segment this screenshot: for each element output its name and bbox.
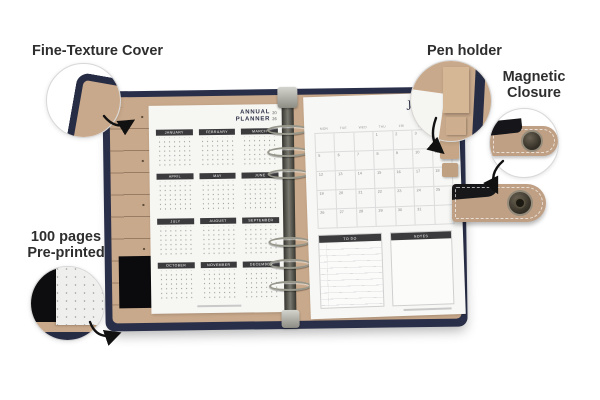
label-pages-line1: 100 pages <box>14 230 118 246</box>
magnifier-cover-texture <box>46 63 121 138</box>
notes-box: NOTES <box>390 230 455 306</box>
left-page-footer-text-line <box>197 305 241 308</box>
calendar-cell: 30 <box>396 207 416 227</box>
mini-month: MAY <box>199 173 236 213</box>
magnifier-magnetic-closure <box>489 108 559 178</box>
notes-header: NOTES <box>391 231 451 240</box>
calendar-cell: 31 <box>415 206 435 226</box>
label-pen-holder: Pen holder <box>427 44 502 60</box>
product-photo-annual-planner: Fine-Texture Cover Pen holder Magnetic C… <box>0 0 600 400</box>
calendar-cell: 9 <box>394 150 414 170</box>
pages-detail-pocket <box>31 267 58 322</box>
binder-clamp-top <box>277 87 297 108</box>
month-grid: 1234567891011121314151617181920212223242… <box>314 128 454 229</box>
mini-month-name: SEPTEMBER <box>242 217 279 224</box>
calendar-cell: 16 <box>394 169 414 189</box>
pen-holder-loop-lower <box>442 163 458 177</box>
calendar-cell: 15 <box>375 169 395 189</box>
calendar-cell: 20 <box>337 190 357 210</box>
calendar-cell: 28 <box>357 208 377 228</box>
calendar-cell: 24 <box>414 187 434 207</box>
mini-month: JANUARY <box>156 129 193 169</box>
calendar-cell: 12 <box>317 171 337 191</box>
day-header: FRI <box>392 124 412 129</box>
pen-holder-detail-loop <box>443 67 469 113</box>
calendar-cell: 27 <box>337 209 357 229</box>
calendar-cell: 8 <box>374 150 394 170</box>
calendar-cell: 23 <box>395 188 415 208</box>
calendar-cell: 10 <box>413 149 433 169</box>
cover-corner-detail <box>65 72 121 138</box>
mini-month: FEBRUARY <box>199 129 236 169</box>
mini-month: SEPTEMBER <box>242 217 279 257</box>
calendar-cell <box>335 133 355 153</box>
mini-month: OCTOBER <box>158 262 195 302</box>
label-magnetic-closure: Magnetic Closure <box>494 70 574 101</box>
annual-planner-title: ANNUAL PLANNER 20 26 <box>236 109 277 123</box>
calendar-cell: 29 <box>376 207 396 227</box>
pen-holder-detail-loop-lower <box>446 117 466 135</box>
calendar-cell <box>354 132 374 152</box>
calendar-cell: 19 <box>317 190 337 210</box>
calendar-cell: 1 <box>374 131 394 151</box>
mini-month-dates <box>156 137 193 168</box>
calendar-cell: 22 <box>376 188 396 208</box>
mini-month-dates <box>199 181 236 212</box>
mini-month-name: JULY <box>157 218 194 225</box>
calendar-cell: 6 <box>335 152 355 172</box>
closure-detail-snap <box>521 130 543 152</box>
inner-pocket <box>119 256 153 308</box>
magnetic-snap-button <box>507 190 533 216</box>
annual-months-grid: JANUARYFEBRUARYMARCHAPRILMAYJUNEJULYAUGU… <box>156 128 280 302</box>
mini-month-dates <box>199 137 236 168</box>
right-page-footer-text-line <box>404 307 452 311</box>
magnifier-pen-holder <box>410 60 492 142</box>
todo-box: TO DO <box>318 233 385 309</box>
day-header: MON <box>314 126 334 131</box>
mini-month: AUGUST <box>200 217 237 257</box>
mini-month-name: MAY <box>199 173 236 180</box>
day-header: THU <box>372 124 392 129</box>
todo-lines <box>319 242 383 307</box>
pages-detail-cover-edge <box>31 332 104 341</box>
left-page-annual-planner: ANNUAL PLANNER 20 26 JANUARYFEBRUARYMARC… <box>149 104 288 314</box>
label-100-pages: 100 pages Pre-printed <box>14 230 118 261</box>
mini-month-dates <box>158 270 195 301</box>
day-header: TUE <box>334 126 354 131</box>
mini-month-name: OCTOBER <box>158 262 195 269</box>
calendar-cell: 5 <box>316 152 336 172</box>
mini-month-dates <box>242 180 279 211</box>
mini-month: NOVEMBER <box>200 261 237 301</box>
calendar-cell: 13 <box>336 171 356 191</box>
mini-month-dates <box>200 269 237 300</box>
mini-month: JUNE <box>242 172 279 212</box>
mini-month-name: AUGUST <box>200 217 237 224</box>
label-magnetic-line1: Magnetic <box>494 70 574 86</box>
calendar-cell: 26 <box>318 209 338 229</box>
mini-month-name: NOVEMBER <box>200 261 237 268</box>
label-fine-texture-cover: Fine-Texture Cover <box>32 44 163 60</box>
calendar-cell: 21 <box>356 189 376 209</box>
strap-attachment <box>452 184 498 200</box>
annual-planner-title-text: ANNUAL PLANNER <box>236 109 271 123</box>
mini-month: JULY <box>157 218 194 258</box>
calendar-cell: 17 <box>414 168 434 188</box>
calendar-cell: 25 <box>434 186 454 206</box>
mini-month-name: APRIL <box>156 174 193 181</box>
mini-month-name: JANUARY <box>156 129 193 136</box>
annual-planner-year: 20 26 <box>272 110 277 122</box>
mini-month-name: FEBRUARY <box>199 129 236 136</box>
calendar-cell: 7 <box>355 151 375 171</box>
mini-month-dates <box>157 226 194 257</box>
label-magnetic-line2: Closure <box>494 86 574 102</box>
magnifier-preprinted-pages <box>30 266 105 341</box>
label-pages-line2: Pre-printed <box>14 246 118 262</box>
mini-month-dates <box>157 182 194 213</box>
binder-clamp-bottom <box>281 310 299 328</box>
mini-month-dates <box>200 225 237 256</box>
pages-detail-dotted-page <box>56 266 105 325</box>
magnetic-closure-strap <box>452 184 546 222</box>
calendar-cell: 14 <box>356 170 376 190</box>
mini-month: APRIL <box>156 174 193 214</box>
calendar-cell <box>315 133 335 153</box>
day-header: WED <box>353 125 373 130</box>
